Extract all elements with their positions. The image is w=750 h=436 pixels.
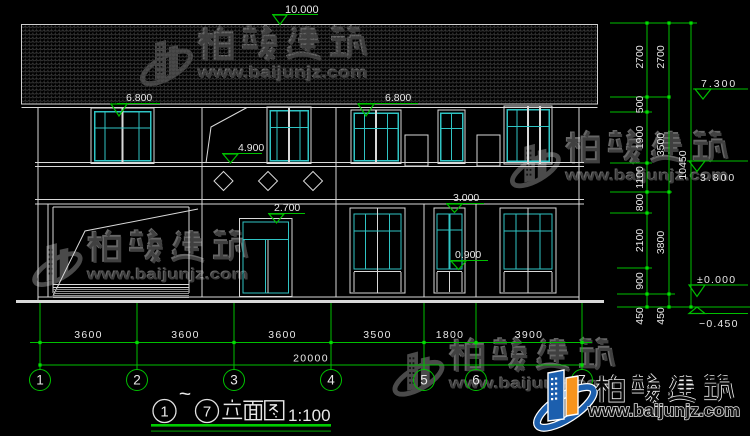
svg-text:6: 6 — [472, 373, 480, 388]
svg-text:±0.000: ±0.000 — [697, 274, 736, 286]
svg-text:2700: 2700 — [634, 45, 646, 69]
svg-text:2700: 2700 — [655, 45, 667, 69]
svg-text:5: 5 — [420, 373, 428, 388]
svg-text:3.000: 3.000 — [453, 192, 479, 204]
svg-text:7.300: 7.300 — [701, 78, 737, 90]
svg-text:3500: 3500 — [655, 133, 667, 157]
svg-text:4: 4 — [327, 373, 335, 388]
svg-text:7: 7 — [203, 404, 211, 421]
svg-text:3: 3 — [230, 373, 238, 388]
svg-text:1: 1 — [160, 404, 168, 421]
svg-text:1100: 1100 — [634, 166, 646, 189]
svg-text:3600: 3600 — [74, 329, 103, 341]
svg-text:2100: 2100 — [634, 229, 646, 253]
svg-text:900: 900 — [634, 272, 646, 290]
svg-text:6.800: 6.800 — [385, 92, 411, 104]
svg-text:3500: 3500 — [363, 329, 392, 341]
svg-text:3800: 3800 — [655, 231, 667, 255]
svg-text:2.700: 2.700 — [274, 202, 300, 214]
svg-text:1: 1 — [36, 373, 44, 388]
svg-text:0.900: 0.900 — [455, 249, 481, 261]
svg-text:800: 800 — [634, 194, 646, 212]
svg-text:3900: 3900 — [515, 329, 544, 341]
svg-text:20000: 20000 — [293, 353, 329, 365]
svg-text:~: ~ — [179, 383, 191, 406]
svg-text:−0.450: −0.450 — [699, 318, 739, 330]
svg-text:500: 500 — [634, 96, 646, 114]
svg-text:www.baijunjz.com: www.baijunjz.com — [587, 401, 740, 420]
svg-text:1800: 1800 — [436, 329, 465, 341]
svg-text:1:100: 1:100 — [288, 406, 331, 425]
svg-text:2: 2 — [133, 373, 141, 388]
svg-text:4.900: 4.900 — [238, 142, 264, 154]
svg-text:10.000: 10.000 — [285, 4, 319, 16]
svg-text:3600: 3600 — [171, 329, 200, 341]
svg-text:450: 450 — [634, 307, 646, 325]
svg-text:3600: 3600 — [268, 329, 297, 341]
svg-text:450: 450 — [655, 307, 667, 325]
svg-text:3.800: 3.800 — [700, 172, 736, 184]
svg-text:6.800: 6.800 — [126, 92, 152, 104]
svg-text:10450: 10450 — [677, 150, 689, 179]
svg-text:1900: 1900 — [634, 126, 646, 150]
